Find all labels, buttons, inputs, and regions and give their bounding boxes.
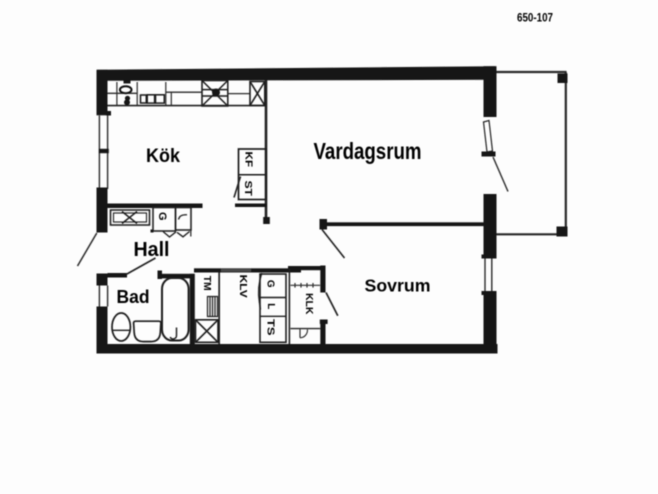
svg-text:TM: TM (201, 276, 212, 291)
svg-text:TS: TS (265, 319, 276, 336)
svg-text:L: L (265, 303, 276, 309)
svg-text:KLV: KLV (237, 275, 248, 298)
svg-text:Kök: Kök (146, 146, 180, 167)
svg-text:G: G (156, 212, 168, 221)
svg-text:Hall: Hall (134, 239, 170, 261)
svg-text:G: G (265, 280, 276, 288)
svg-text:650-107: 650-107 (517, 13, 553, 25)
svg-text:KLK: KLK (303, 293, 314, 315)
svg-text:KF: KF (243, 152, 255, 168)
svg-text:ST: ST (242, 180, 254, 196)
svg-text:Vardagsrum: Vardagsrum (314, 138, 422, 164)
svg-text:Sovrum: Sovrum (365, 276, 431, 296)
svg-text:Bad: Bad (117, 286, 150, 307)
